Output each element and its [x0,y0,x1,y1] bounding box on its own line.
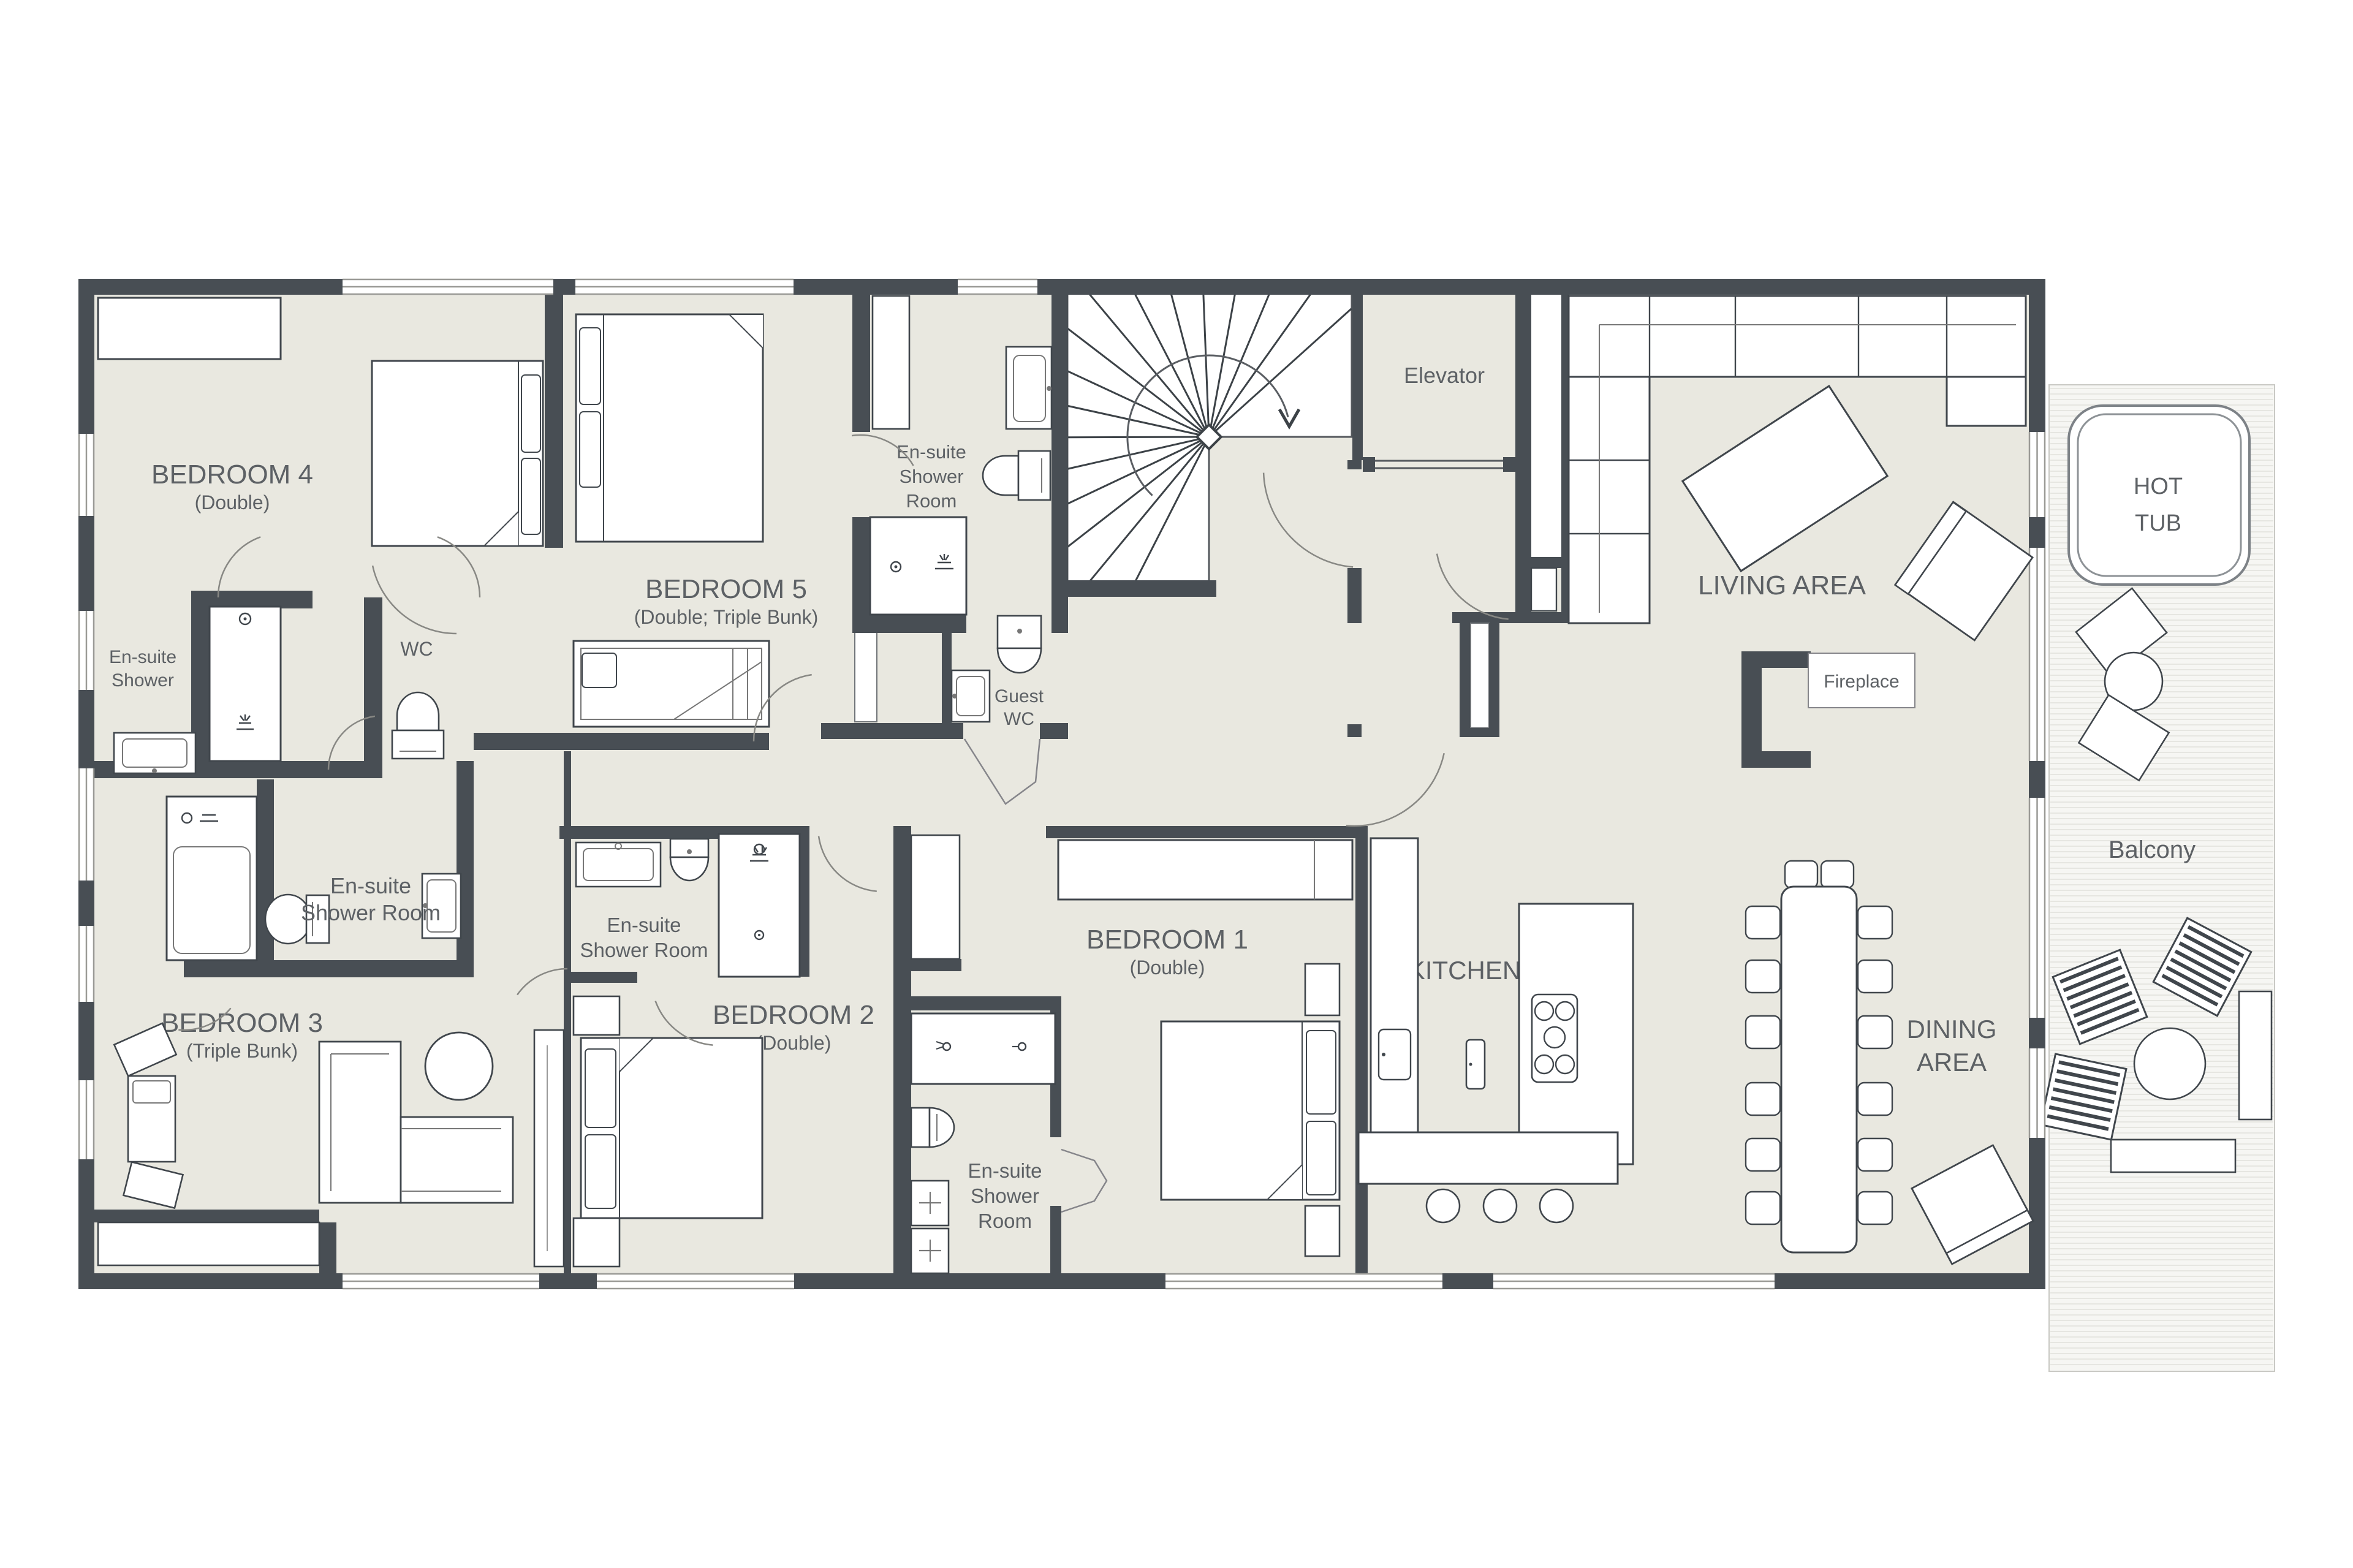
svg-text:Room: Room [978,1210,1032,1232]
svg-text:BEDROOM 3: BEDROOM 3 [161,1008,323,1038]
svg-text:Fireplace: Fireplace [1824,672,1899,692]
svg-text:BEDROOM 2: BEDROOM 2 [713,1000,874,1030]
svg-text:Elevator: Elevator [1404,363,1485,388]
svg-text:(Double): (Double) [756,1032,832,1054]
svg-text:TUB: TUB [2135,510,2181,536]
svg-text:BEDROOM 5: BEDROOM 5 [645,574,807,604]
svg-text:DINING: DINING [1907,1015,1997,1043]
svg-text:Shower: Shower [112,670,174,691]
svg-text:BEDROOM 4: BEDROOM 4 [151,460,313,490]
svg-text:Guest: Guest [995,686,1044,706]
svg-text:Balcony: Balcony [2109,836,2196,863]
svg-text:(Triple Bunk): (Triple Bunk) [186,1040,298,1062]
svg-text:En-suite: En-suite [330,873,411,898]
svg-text:Shower Room: Shower Room [580,939,708,961]
svg-text:WC: WC [1004,709,1034,729]
svg-text:(Double): (Double) [1130,956,1205,979]
svg-text:En-suite: En-suite [607,914,681,936]
svg-text:WC: WC [400,638,433,660]
svg-text:En-suite: En-suite [896,441,966,463]
svg-text:Shower: Shower [899,466,963,487]
svg-text:Room: Room [906,490,957,512]
svg-text:En-suite: En-suite [109,647,176,667]
svg-text:Shower Room: Shower Room [301,900,441,925]
svg-text:En-suite: En-suite [968,1159,1042,1182]
svg-text:AREA: AREA [1917,1048,1987,1077]
svg-text:(Double; Triple Bunk): (Double; Triple Bunk) [634,606,819,628]
svg-text:KITCHEN: KITCHEN [1408,956,1521,985]
svg-text:(Double): (Double) [195,491,270,513]
svg-text:LIVING AREA: LIVING AREA [1698,570,1866,600]
svg-text:BEDROOM 1: BEDROOM 1 [1086,925,1248,955]
svg-text:Shower: Shower [971,1184,1039,1207]
svg-text:HOT: HOT [2134,474,2183,499]
